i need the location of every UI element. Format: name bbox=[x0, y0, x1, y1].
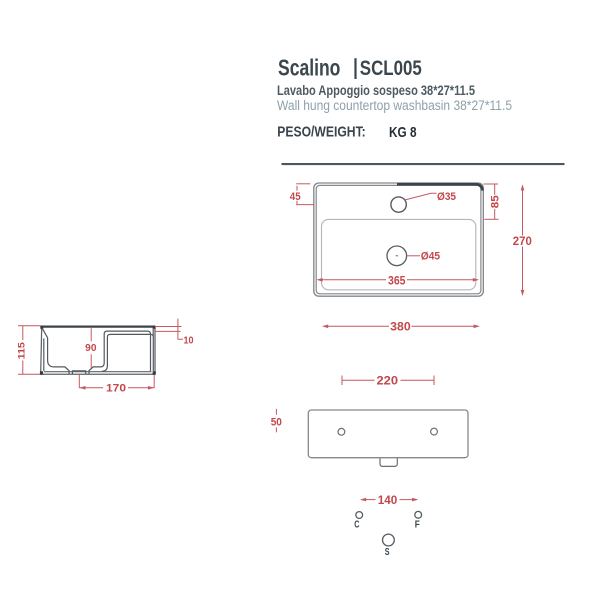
svg-text:C: C bbox=[354, 520, 359, 531]
svg-text:270: 270 bbox=[513, 236, 532, 248]
svg-text:50: 50 bbox=[271, 417, 282, 429]
svg-text:Scalino: Scalino bbox=[278, 55, 340, 81]
svg-text:140: 140 bbox=[378, 495, 398, 507]
svg-text:45: 45 bbox=[290, 191, 301, 203]
svg-text:90: 90 bbox=[85, 343, 97, 354]
svg-text:PESO/WEIGHT:: PESO/WEIGHT: bbox=[277, 125, 365, 141]
svg-text:S: S bbox=[385, 546, 390, 558]
svg-text:Lavabo Appoggio sospeso 38*27*: Lavabo Appoggio sospeso 38*27*11.5 bbox=[277, 82, 475, 98]
svg-text:Ø45: Ø45 bbox=[421, 251, 440, 263]
svg-text:365: 365 bbox=[388, 275, 406, 287]
svg-text:115: 115 bbox=[16, 342, 26, 359]
svg-text:85: 85 bbox=[489, 195, 501, 208]
svg-text:10: 10 bbox=[184, 336, 194, 347]
svg-text:Ø35: Ø35 bbox=[437, 191, 456, 203]
svg-text:F: F bbox=[415, 520, 420, 531]
svg-text:Wall hung countertop washbasi: Wall hung countertop washbasin 38*27*11.… bbox=[277, 98, 512, 113]
svg-text:KG 8: KG 8 bbox=[389, 124, 417, 141]
svg-text:170: 170 bbox=[106, 383, 126, 395]
svg-text:SCL005: SCL005 bbox=[360, 57, 422, 80]
svg-text:380: 380 bbox=[390, 322, 411, 334]
svg-text:220: 220 bbox=[377, 376, 399, 388]
